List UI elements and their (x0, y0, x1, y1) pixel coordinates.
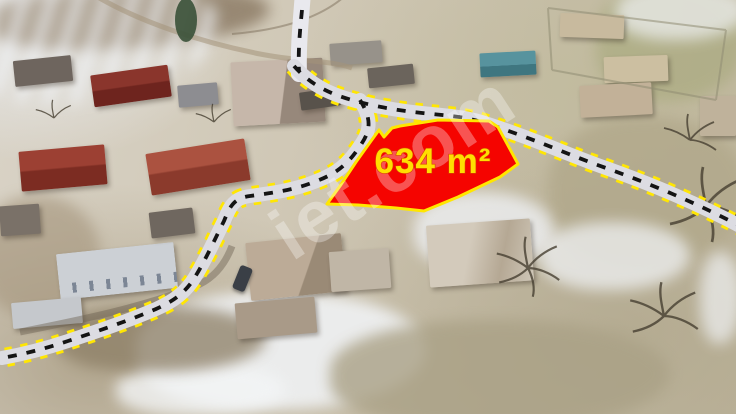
fence-line (548, 8, 726, 100)
aerial-photo: iet.com 634 m² (0, 0, 736, 414)
creek-line (232, 0, 345, 34)
parcel-area-label: 634 m² (375, 142, 492, 181)
map-overlay-svg: iet.com 634 m² (0, 0, 736, 414)
dirt-track (96, 0, 352, 68)
conifer-tree (175, 0, 197, 42)
